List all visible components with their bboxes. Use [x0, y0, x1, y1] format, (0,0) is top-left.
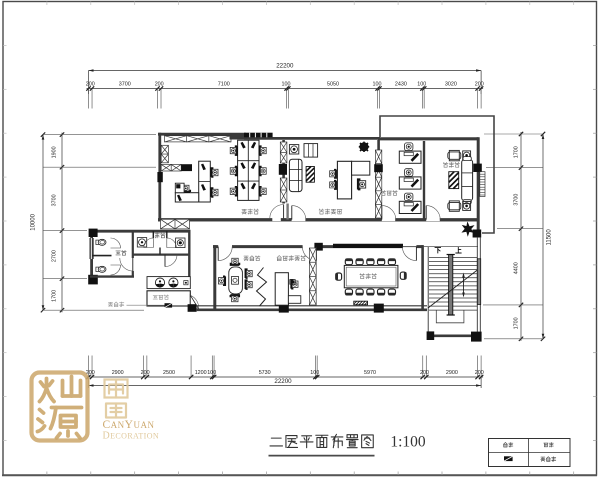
- svg-text:3020: 3020: [445, 82, 457, 88]
- svg-text:5050: 5050: [327, 82, 339, 88]
- svg-text:200: 200: [475, 370, 484, 376]
- svg-text:1700: 1700: [52, 290, 58, 302]
- svg-text:7100: 7100: [218, 82, 230, 88]
- svg-text:2700: 2700: [52, 250, 58, 262]
- svg-text:4400: 4400: [514, 262, 520, 274]
- svg-text:100: 100: [417, 82, 426, 88]
- svg-text:100: 100: [282, 82, 291, 88]
- svg-text:3700: 3700: [514, 194, 520, 206]
- svg-text:10000: 10000: [31, 213, 37, 230]
- svg-text:1900: 1900: [52, 146, 58, 158]
- svg-text:3700: 3700: [119, 82, 131, 88]
- svg-text:200: 200: [86, 82, 95, 88]
- svg-text:1200: 1200: [195, 370, 207, 376]
- svg-text:11500: 11500: [547, 229, 553, 246]
- svg-text:2900: 2900: [446, 370, 458, 376]
- svg-text:200: 200: [420, 370, 429, 376]
- svg-text:2430: 2430: [395, 82, 407, 88]
- svg-text:5730: 5730: [259, 370, 271, 376]
- svg-text:1:100: 1:100: [390, 434, 426, 451]
- svg-text:22200: 22200: [274, 378, 292, 385]
- svg-text:DECORATION: DECORATION: [103, 431, 160, 442]
- svg-text:100: 100: [310, 370, 319, 376]
- svg-text:200: 200: [141, 370, 150, 376]
- svg-text:200: 200: [475, 82, 484, 88]
- svg-text:2500: 2500: [163, 370, 175, 376]
- svg-text:5970: 5970: [364, 370, 376, 376]
- svg-text:100: 100: [207, 370, 216, 376]
- svg-text:1700: 1700: [514, 146, 520, 158]
- svg-text:200: 200: [155, 82, 164, 88]
- svg-text:CANYUAN: CANYUAN: [103, 419, 155, 431]
- svg-text:3700: 3700: [52, 194, 58, 206]
- svg-text:22200: 22200: [276, 63, 294, 70]
- svg-text:1700: 1700: [514, 317, 520, 329]
- svg-text:2900: 2900: [112, 370, 124, 376]
- svg-text:100: 100: [373, 82, 382, 88]
